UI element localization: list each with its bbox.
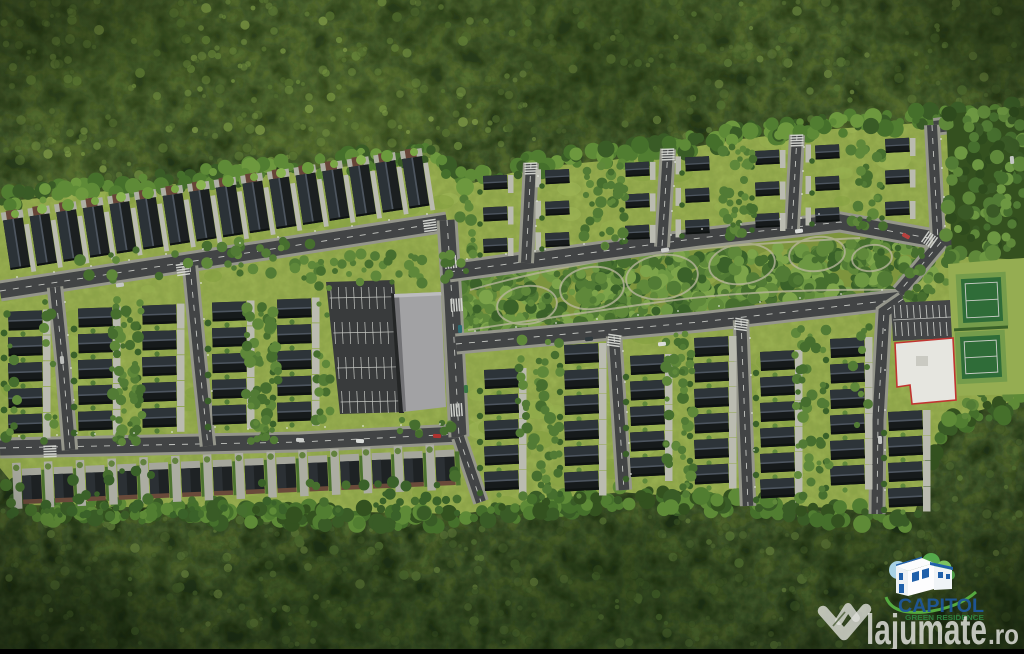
svg-text:.ro: .ro — [988, 619, 1019, 649]
svg-text:lajumate: lajumate — [866, 606, 987, 649]
